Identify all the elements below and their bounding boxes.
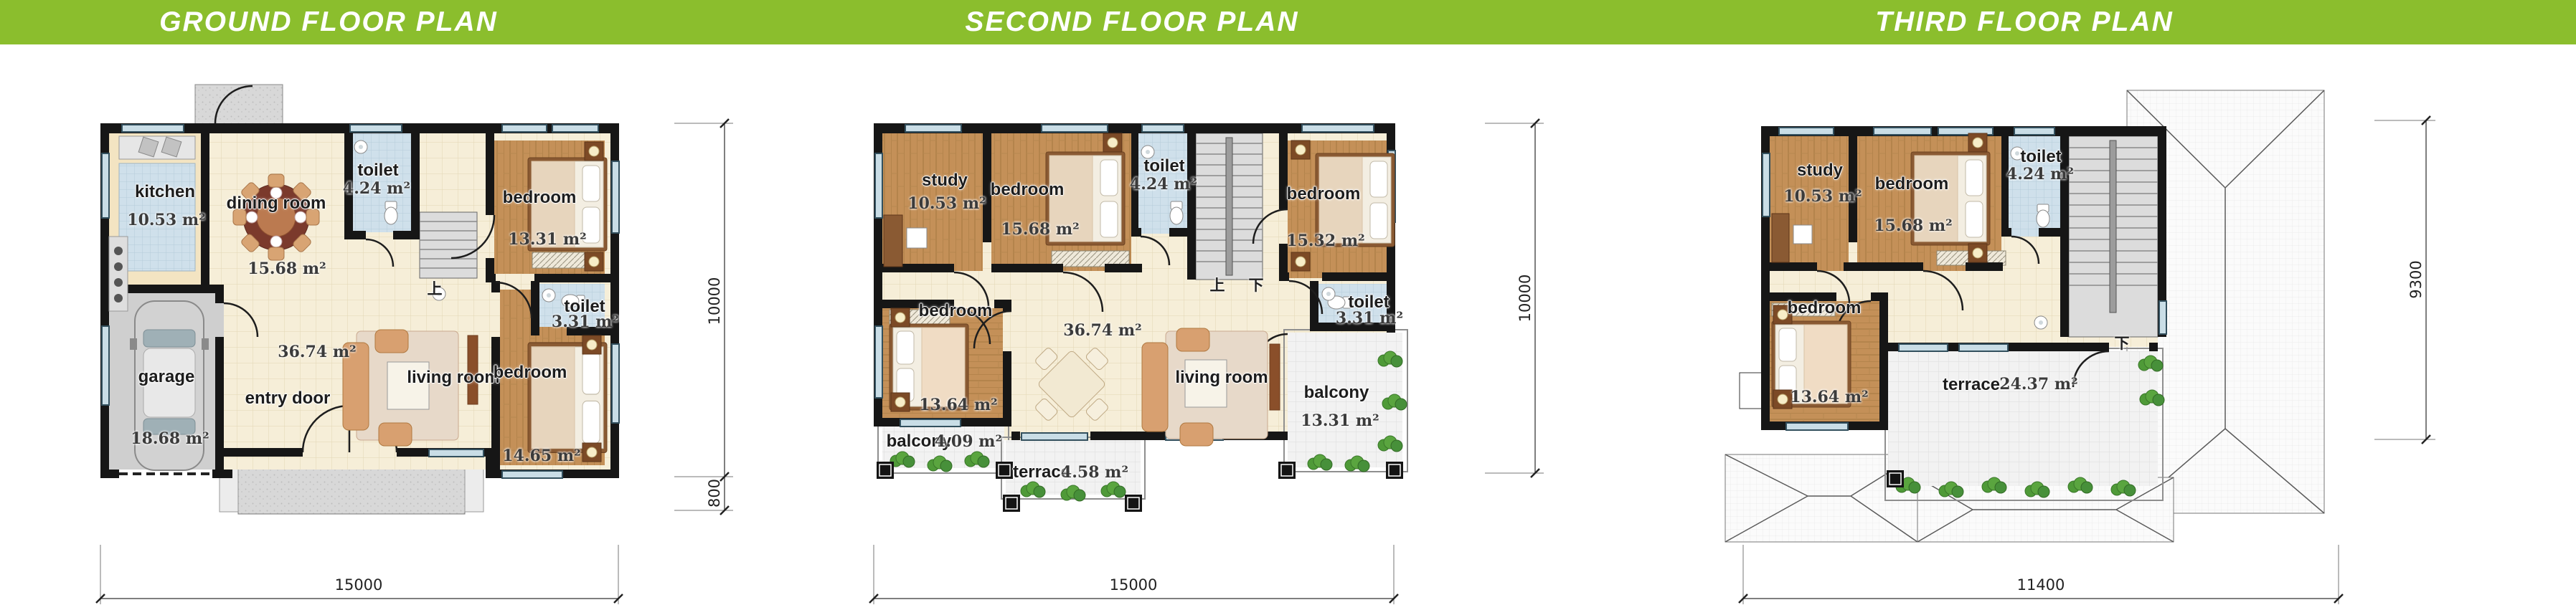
dim-ground-porch: 800 <box>706 479 723 508</box>
room-area-balcony-right: 13.31 m² <box>1301 411 1379 430</box>
room-label-study-2f: study <box>922 171 968 191</box>
second-floor-plan <box>869 119 1544 604</box>
ground-floor-plan <box>96 85 733 604</box>
dim-third-width: 11400 <box>2017 576 2065 594</box>
room-area-toilet-top: 4.24 m² <box>343 179 410 198</box>
room-label-terrace-3f: terrace <box>1943 375 2000 395</box>
room-label-living-2f: living room <box>1175 368 1268 388</box>
dim-second-width: 15000 <box>1110 576 1158 594</box>
room-area-bedroom-top: 13.31 m² <box>508 230 586 249</box>
room-label-balcony-right: balcony <box>1304 383 1369 403</box>
room-label-bedroom-right-2f: bedroom <box>1287 184 1361 204</box>
room-area-terrace-2f: 4.58 m² <box>1061 463 1128 482</box>
room-area-living-2f: 36.74 m² <box>1063 321 1141 340</box>
room-area-bedroom-right-2f: 15.32 m² <box>1286 232 1364 250</box>
stairs-down-label-2f: 下 <box>1249 274 1264 295</box>
room-area-bedroom-top-2f: 15.68 m² <box>1001 220 1079 239</box>
room-area-living-room: 36.74 m² <box>278 343 356 361</box>
room-area-bedroom-top-3f: 15.68 m² <box>1874 216 1952 235</box>
room-area-toilet-mid-2f: 3.31 m² <box>1336 309 1403 328</box>
room-area-toilet-top-2f: 4.24 m² <box>1130 175 1197 194</box>
room-label-toilet-top-2f: toilet <box>1143 156 1184 176</box>
dim-third-height: 9300 <box>2407 260 2425 298</box>
room-label-bedroom-top-2f: bedroom <box>991 180 1065 200</box>
room-area-dining-room: 15.68 m² <box>247 259 326 278</box>
room-area-balcony-left: 4.09 m² <box>935 432 1002 451</box>
room-area-kitchen: 10.53 m² <box>127 211 205 229</box>
room-area-garage: 18.68 m² <box>131 429 209 448</box>
dim-ground-height: 10000 <box>706 277 723 325</box>
stairs-up-label: 上 <box>428 277 443 299</box>
room-label-bedroom-top-3f: bedroom <box>1875 174 1949 194</box>
room-area-toilet-top-3f: 4.24 m² <box>2006 165 2074 184</box>
room-area-study-2f: 10.53 m² <box>907 194 986 213</box>
floor-plans-drawing <box>0 0 2576 605</box>
room-label-toilet-top: toilet <box>357 161 398 181</box>
room-area-bedroom-left-2f: 13.64 m² <box>919 396 997 414</box>
room-label-living-room: living room <box>407 368 499 388</box>
dim-second-height: 10000 <box>1516 275 1534 323</box>
room-label-bedroom-left-3f: bedroom <box>1788 298 1862 318</box>
room-area-study-3f: 10.53 m² <box>1783 187 1862 206</box>
room-label-bedroom-bottom: bedroom <box>494 363 567 383</box>
room-label-garage: garage <box>138 367 195 387</box>
room-label-kitchen: kitchen <box>135 182 195 202</box>
room-label-bedroom-top: bedroom <box>503 188 577 208</box>
room-label-toilet-top-3f: toilet <box>2020 147 2061 167</box>
stairs-down-label-3f: 下 <box>2115 332 2130 353</box>
room-area-terrace-3f: 24.37 m² <box>1999 375 2077 394</box>
room-label-bedroom-left-2f: bedroom <box>919 301 993 321</box>
room-area-toilet-mid: 3.31 m² <box>552 313 619 331</box>
room-label-study-3f: study <box>1797 161 1843 181</box>
room-area-bedroom-left-3f: 13.64 m² <box>1790 388 1868 406</box>
floor-plans-page: GROUND FLOOR PLAN SECOND FLOOR PLAN THIR… <box>0 0 2576 605</box>
dim-ground-width: 15000 <box>335 576 383 594</box>
room-area-bedroom-bottom: 14.65 m² <box>502 447 580 465</box>
stairs-up-label-2f: 上 <box>1210 274 1225 295</box>
room-label-dining-room: dining room <box>227 194 326 214</box>
room-label-entry-door: entry door <box>245 389 331 409</box>
